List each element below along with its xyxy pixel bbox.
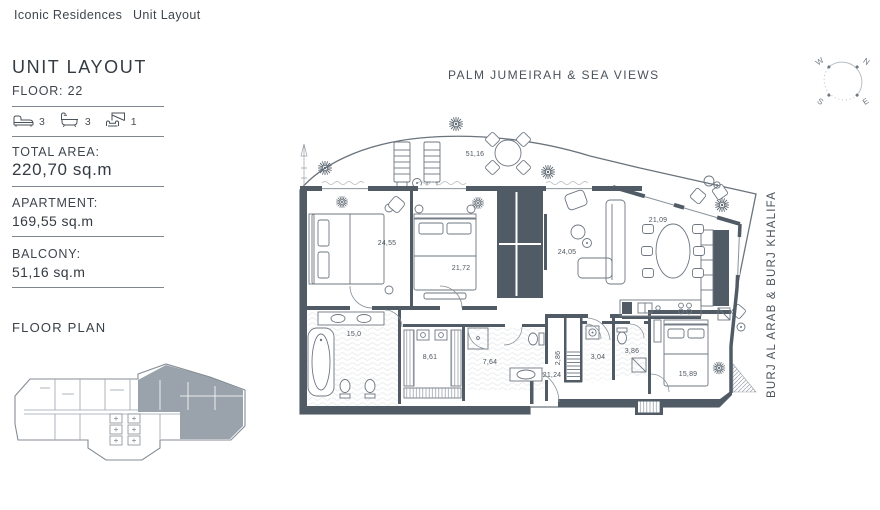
floor-plan-minimap[interactable] [8, 348, 258, 483]
bathrooms-count: 3 [85, 117, 91, 129]
view-label-sea: PALM JUMEIRAH & SEA VIEWS [448, 68, 659, 82]
area-label-dining: 21,09 [649, 217, 668, 224]
sofa [606, 200, 625, 284]
compass-south-marker [827, 93, 831, 97]
maid-room-icon [104, 111, 127, 128]
total-area-value: 220,70 sq.m [12, 160, 112, 180]
plant-icon [318, 161, 332, 175]
plant-icon [472, 197, 484, 209]
unit-features: 3 3 1 [12, 111, 137, 128]
living-room-furniture [564, 189, 625, 284]
armchair [564, 189, 588, 211]
area-label-bedroom-2: 21,72 [452, 265, 471, 272]
coffee-table [571, 225, 585, 239]
maid-room-feature: 1 [104, 111, 137, 128]
bathrooms-feature: 3 [58, 111, 91, 128]
terrace-ramp [733, 364, 756, 392]
compass: W N S E [800, 40, 876, 116]
compass-east: E [861, 96, 871, 106]
divider [12, 287, 164, 288]
bed [312, 214, 384, 284]
bed-icon [12, 111, 35, 128]
maid-room-count: 1 [131, 117, 137, 129]
kitchen [620, 230, 730, 320]
drawer-unit [417, 330, 429, 340]
balcony-area-value: 51,16 sq.m [12, 264, 85, 280]
area-label-laundry: 3,04 [591, 354, 605, 361]
bedroom-2-furniture [414, 197, 484, 299]
nav-brand[interactable]: Iconic Residences [14, 8, 122, 22]
minimap-highlighted-unit [138, 365, 243, 439]
bidet-icon [365, 380, 375, 393]
plant-icon [449, 117, 463, 131]
floor-label: FLOOR: 22 [12, 84, 83, 98]
compass-west: W [814, 55, 826, 67]
compass-south: S [816, 96, 826, 106]
dining-table [656, 224, 690, 278]
balcony-chair [485, 160, 501, 176]
lounge-chair [424, 142, 440, 187]
area-label-bath-3: 3,86 [625, 348, 639, 355]
view-label-burj: BURJ AL ARAB & BURJ KHALIFA [766, 182, 786, 398]
area-label-hallway: 21,24 [543, 372, 562, 379]
apartment-area-label: APARTMENT: [12, 196, 98, 210]
area-label-balcony: 51,16 [466, 151, 485, 158]
divider [12, 136, 164, 137]
divider [12, 236, 164, 237]
plant-icon [713, 362, 726, 375]
bath-icon [58, 111, 81, 128]
plant-icon [541, 165, 555, 179]
dressing-room [404, 330, 461, 398]
minimap-elevator-core [110, 414, 140, 445]
toilet-icon [529, 333, 538, 345]
balcony-table [495, 140, 521, 166]
chaise [578, 258, 612, 278]
total-area-label: TOTAL AREA: [12, 145, 100, 159]
area-label-dressing: 8,61 [423, 354, 437, 361]
nav-current-page[interactable]: Unit Layout [133, 8, 201, 22]
drawer-unit [435, 330, 447, 340]
toilet-icon [340, 380, 350, 393]
compass-north: N [861, 56, 871, 67]
bedrooms-feature: 3 [12, 111, 45, 128]
area-label-bedroom-3: 15,89 [679, 371, 698, 378]
plant-icon [715, 198, 729, 212]
divider [12, 106, 164, 107]
toilet-icon [618, 332, 627, 344]
page-title: UNIT LAYOUT [12, 57, 147, 78]
area-label-living: 24,05 [558, 249, 577, 256]
kitchen-tall-units [713, 230, 729, 306]
vanity [318, 312, 384, 325]
apartment-area-value: 169,55 sq.m [12, 213, 93, 229]
unit-layout-page: Iconic Residences Unit Layout UNIT LAYOU… [0, 0, 880, 510]
balcony-chair [516, 160, 532, 176]
spire-decor [301, 144, 307, 188]
plant-icon [336, 196, 348, 208]
bed [414, 218, 476, 290]
armchair [387, 195, 405, 213]
bedrooms-count: 3 [39, 117, 45, 129]
lounge-chair [394, 142, 410, 187]
balcony-chair [690, 188, 707, 205]
balcony-area-label: BALCONY: [12, 247, 81, 261]
area-label-bath-2: 7,64 [483, 359, 497, 366]
floor-plan-title: FLOOR PLAN [12, 320, 106, 335]
area-label-master-bath: 15,0 [347, 331, 361, 338]
area-label-bedroom-1: 24,55 [378, 240, 397, 247]
area-label-duct: 2,86 [555, 351, 562, 365]
divider [12, 186, 164, 187]
dining-furniture [642, 224, 705, 278]
unit-floor-plan: 51,16 24,55 21,72 24,05 21,09 15,0 8,61 … [290, 96, 760, 428]
